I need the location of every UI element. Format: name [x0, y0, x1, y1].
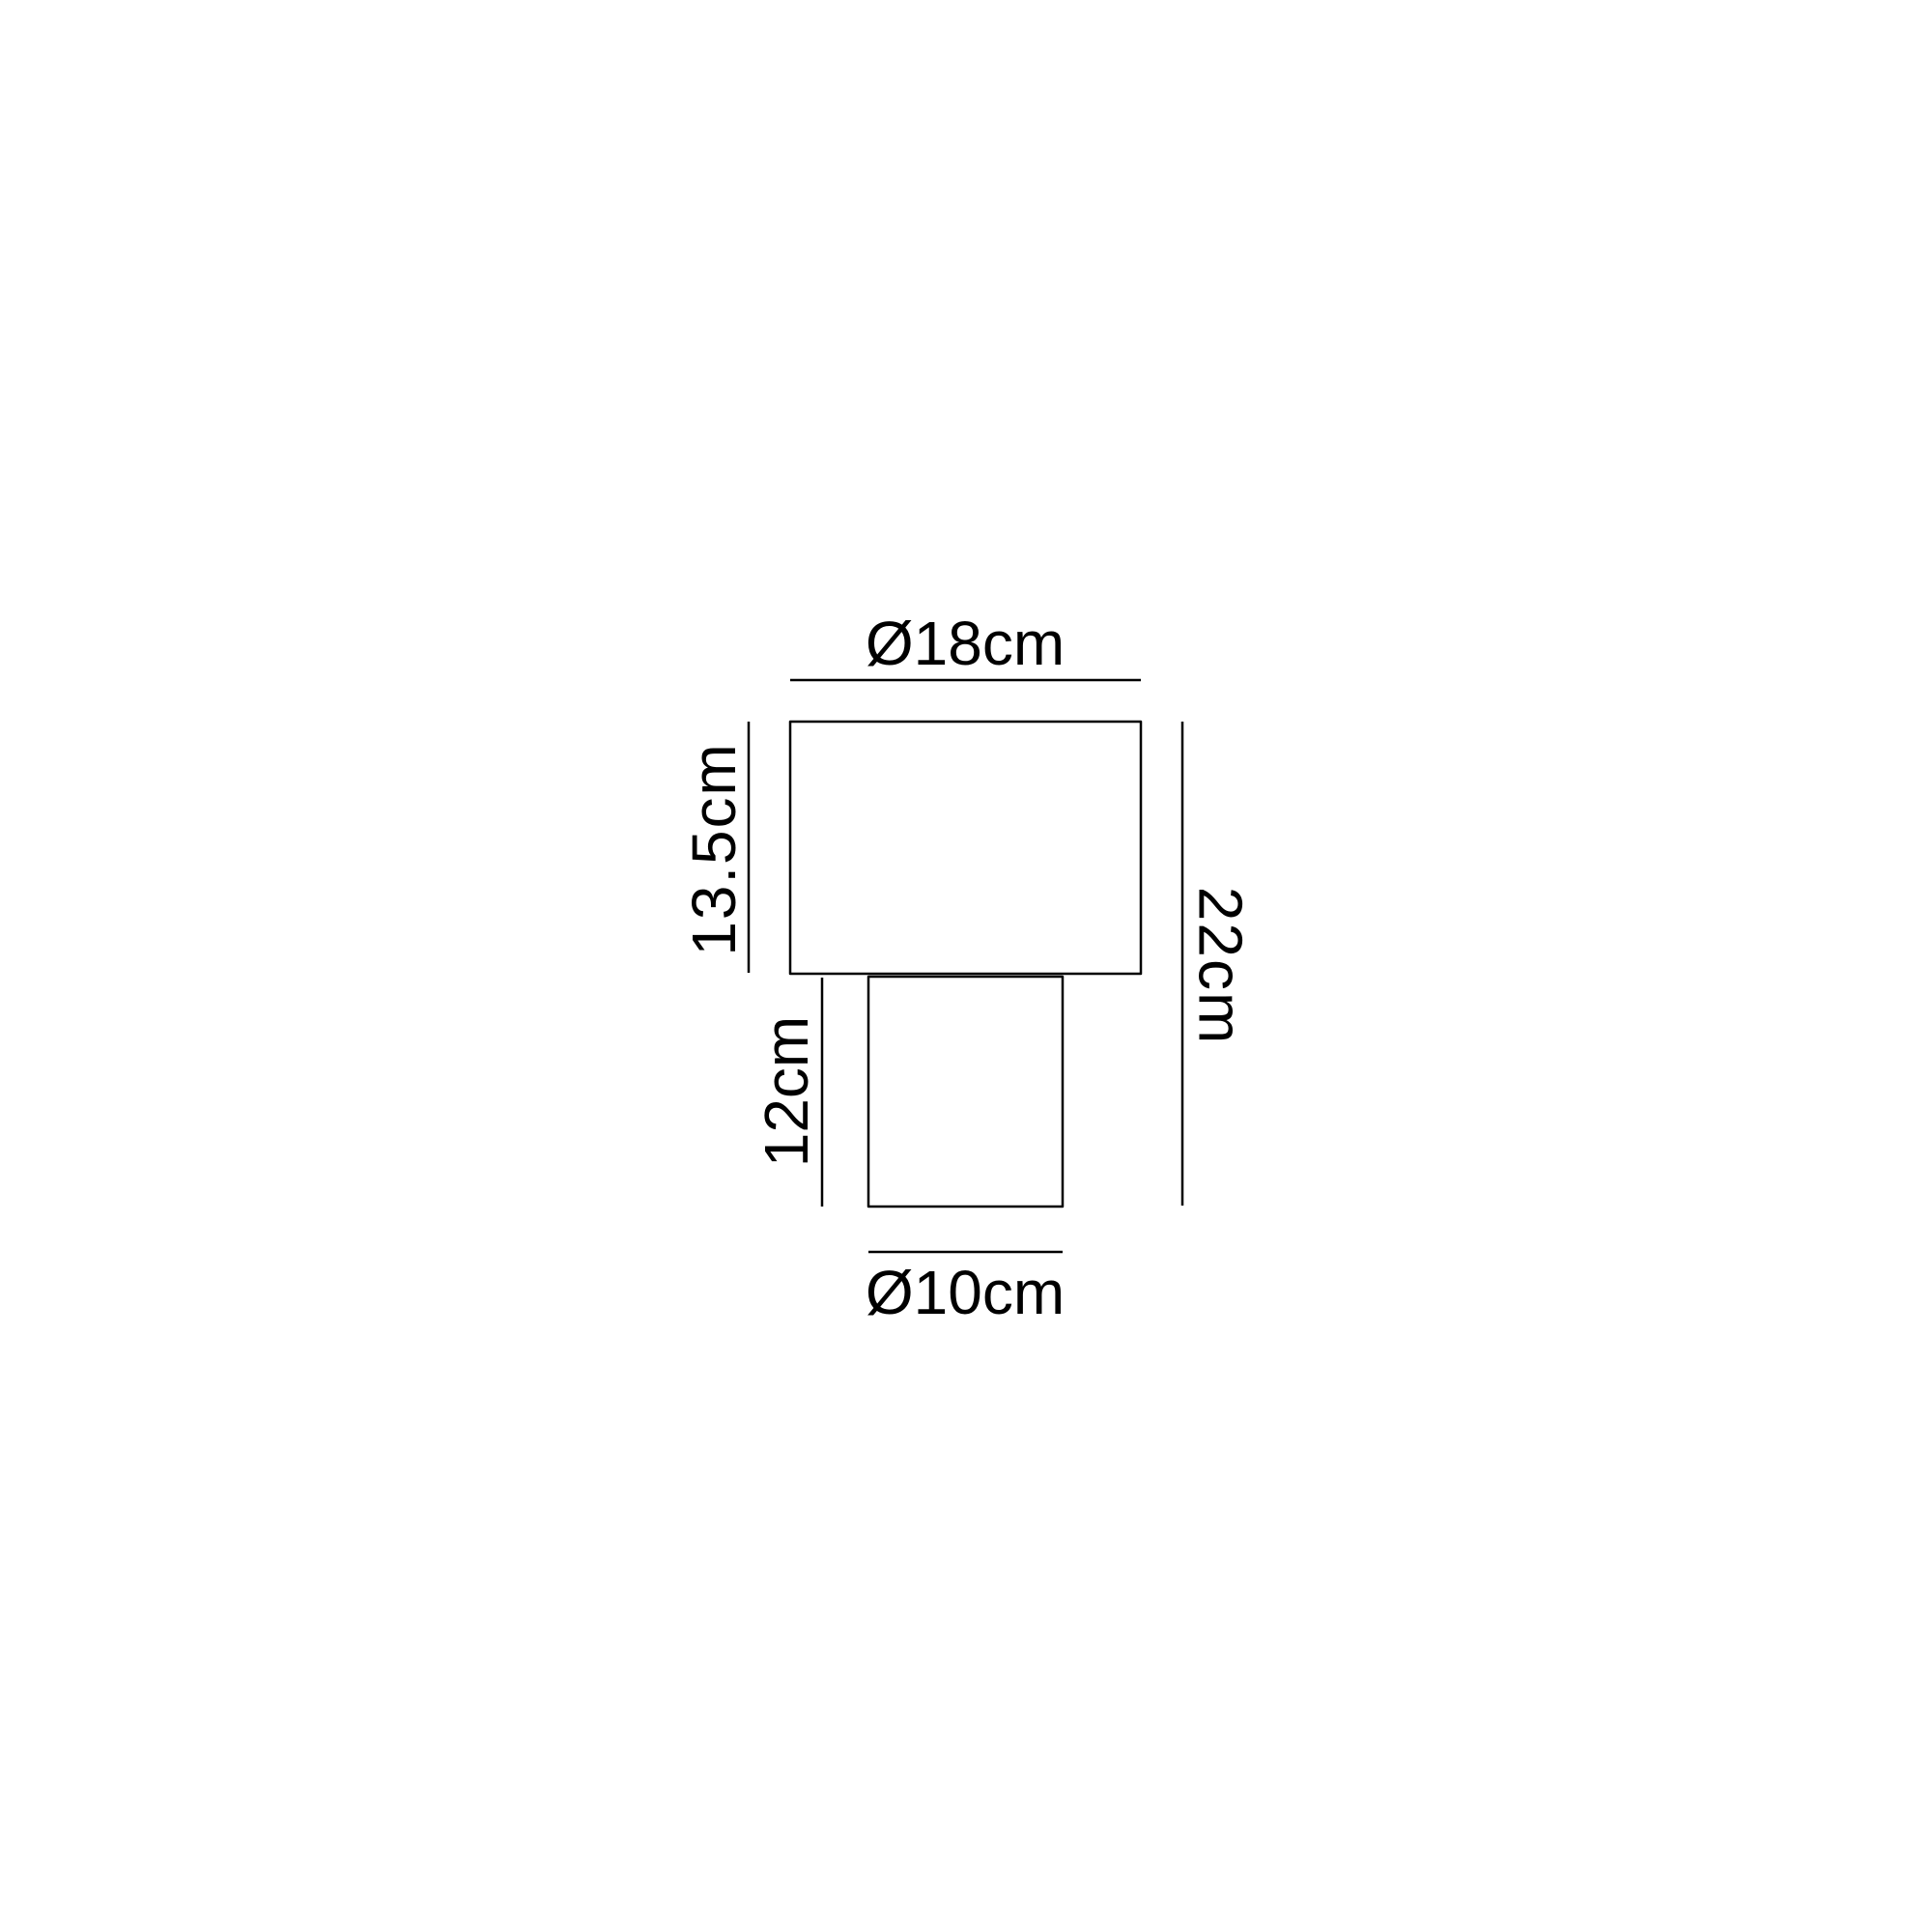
svg-text:Ø18cm: Ø18cm: [866, 609, 1065, 678]
svg-text:12cm: 12cm: [752, 1016, 821, 1168]
svg-text:22cm: 22cm: [1186, 887, 1256, 1046]
svg-text:13.5cm: 13.5cm: [679, 742, 749, 955]
svg-text:Ø10cm: Ø10cm: [866, 1258, 1065, 1327]
